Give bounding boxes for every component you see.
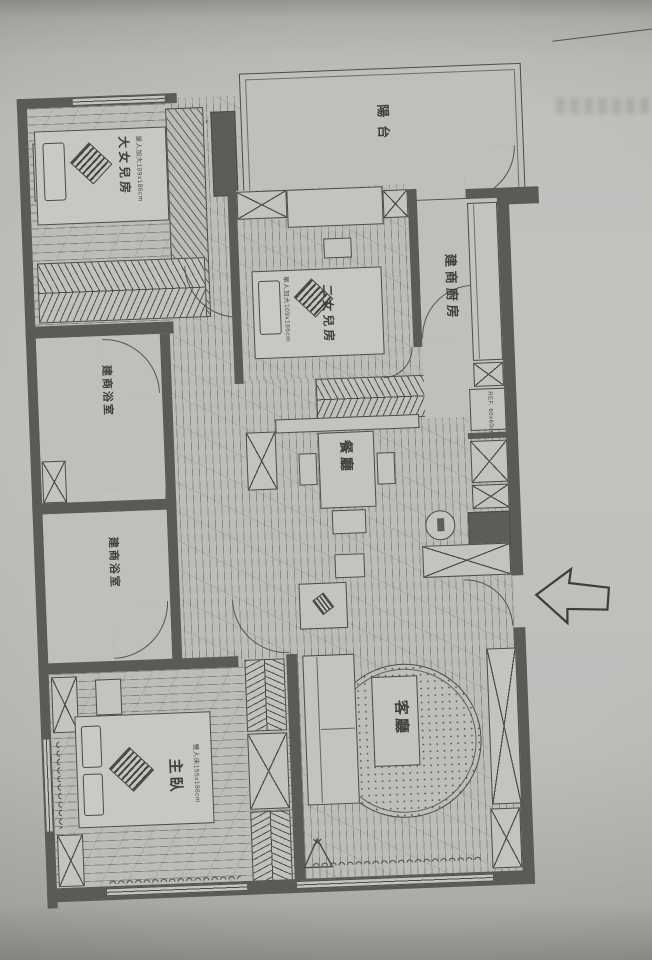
bath-lower-label: 建商浴室	[106, 536, 124, 589]
tv-cabinet	[486, 647, 522, 804]
second-cabinet-left	[236, 190, 287, 220]
second-room-label: 二女兒房	[319, 284, 338, 345]
shoe-cabinet	[422, 543, 511, 578]
kitchen-counter	[467, 202, 503, 361]
ink-bleedthrough	[556, 98, 652, 114]
dining-storage-cabinet	[246, 432, 278, 491]
kitchen-label: 建商廚房	[442, 253, 464, 322]
second-shelf	[323, 237, 352, 258]
dining-chair-right	[376, 452, 395, 485]
elder-wardrobe	[37, 257, 207, 323]
paper-edge-line	[552, 27, 652, 41]
balcony-label: 陽台	[374, 104, 395, 147]
master-pillow-1	[81, 725, 103, 768]
living-label: 客廳	[391, 699, 413, 736]
wall-stub-balcony-left	[210, 111, 238, 197]
master-room-label: 主臥	[165, 758, 187, 795]
dining-label: 餐廳	[336, 439, 357, 474]
master-cabinet-bottomleft	[57, 834, 85, 887]
elder-bed-pillow	[42, 142, 66, 201]
second-cabinet-right	[382, 189, 408, 218]
dining-chair-left	[298, 453, 317, 486]
entrance-arrow-icon	[532, 563, 612, 632]
master-wardrobe-bottom	[250, 810, 293, 881]
second-bed-pillow	[258, 280, 282, 335]
appliance-cabinet	[470, 440, 509, 483]
entry-round-table-mark	[437, 518, 444, 531]
pipe-shaft	[42, 461, 68, 504]
elder-room-label: 大女兒房	[115, 136, 134, 197]
floorplan: 陽台 單人加大109x186cm 大女兒房 建商浴室	[14, 54, 567, 933]
corner-cabinet	[490, 807, 522, 868]
master-nightstand	[95, 679, 122, 716]
desk-chair	[334, 553, 365, 578]
kitchen-sink-cabinet	[473, 362, 504, 387]
master-pillow-2	[83, 773, 105, 816]
appliance-cabinet-small	[472, 484, 510, 509]
floorplan-photo: 陽台 單人加大109x186cm 大女兒房 建商浴室	[0, 0, 652, 960]
dining-chair-bottom	[332, 509, 367, 534]
master-wardrobe-middle	[247, 732, 290, 809]
master-wardrobe-top	[244, 658, 287, 731]
second-desk-top	[286, 186, 383, 228]
